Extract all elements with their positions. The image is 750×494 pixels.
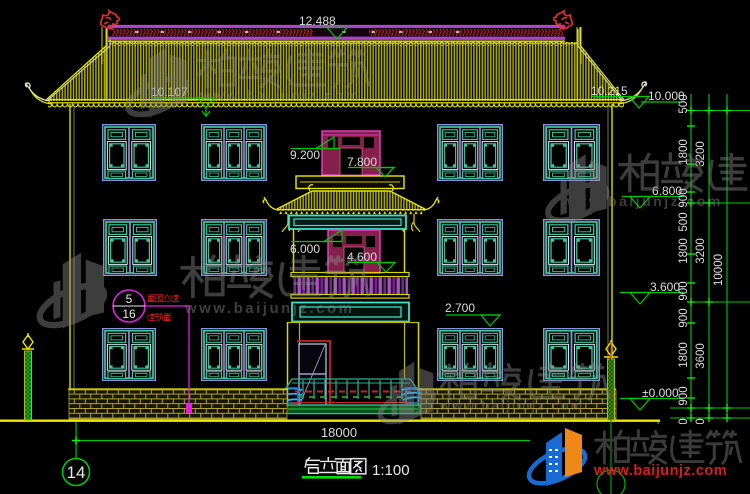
svg-text:18000: 18000	[321, 425, 357, 440]
svg-text:www.baijunjz.com: www.baijunjz.com	[439, 398, 584, 413]
svg-text:2.700: 2.700	[445, 301, 475, 315]
svg-text:500: 500	[678, 94, 690, 113]
svg-text:www.baijunjz.com: www.baijunjz.com	[593, 463, 727, 479]
svg-text:1800: 1800	[678, 342, 690, 368]
svg-text:www.baijunjz.com: www.baijunjz.com	[561, 193, 723, 209]
svg-text:12.488: 12.488	[299, 14, 336, 28]
svg-text:16: 16	[122, 307, 136, 321]
svg-text:1:100: 1:100	[372, 462, 410, 479]
svg-text:900: 900	[678, 281, 690, 300]
svg-text:www.baijunjz.com: www.baijunjz.com	[199, 87, 361, 103]
svg-text:9.200: 9.200	[290, 148, 320, 162]
svg-text:3600: 3600	[695, 343, 707, 369]
svg-text:www.baijunjz.com: www.baijunjz.com	[184, 300, 354, 317]
svg-text:6.000: 6.000	[290, 242, 320, 256]
svg-text:900: 900	[678, 386, 690, 405]
svg-text:5: 5	[126, 292, 133, 306]
svg-text:3200: 3200	[695, 238, 707, 264]
svg-text:900: 900	[678, 308, 690, 327]
svg-text:500: 500	[678, 212, 690, 231]
svg-text:10000: 10000	[713, 254, 725, 286]
svg-text:14: 14	[67, 463, 86, 482]
svg-text:3200: 3200	[695, 141, 707, 167]
svg-text:1800: 1800	[678, 238, 690, 264]
